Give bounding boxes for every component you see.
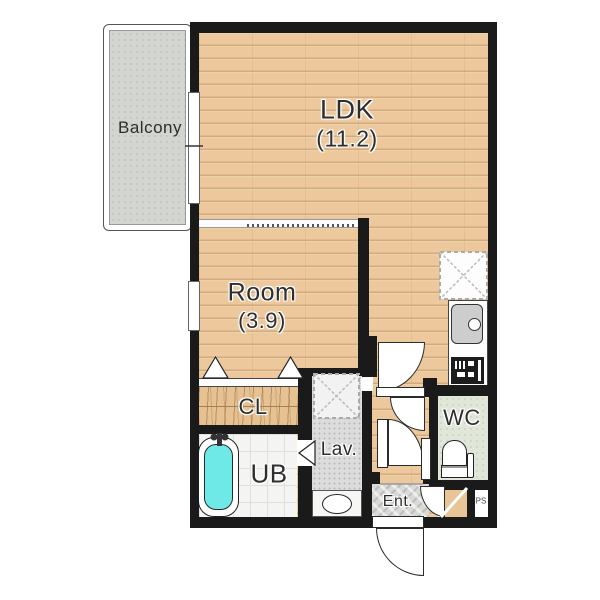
toilet-tank-icon	[441, 465, 468, 478]
ldk-door-leaf	[376, 387, 425, 397]
wall-kitchen-bottom	[429, 385, 497, 396]
balcony-window	[188, 92, 200, 204]
lavatory-label: Lav.	[321, 439, 358, 461]
floor-plan: LDK (11.2) Room (3.9) Balcony CL UB Lav.…	[0, 0, 600, 600]
front-door-arc	[376, 528, 424, 576]
wall-pipe-space-left	[467, 490, 475, 518]
wc-label: WC	[443, 405, 481, 431]
wall-right	[488, 22, 497, 528]
closet-label: CL	[238, 394, 267, 420]
pipe-space-label: PS	[476, 497, 487, 506]
room-label: Room	[228, 279, 297, 308]
lavatory-doorway-gap	[361, 377, 373, 391]
front-door-leaf	[372, 516, 424, 528]
washbasin-icon	[322, 494, 352, 514]
accordion-partition-dotted-line	[247, 224, 357, 227]
wall-top	[190, 22, 497, 33]
wall-closet-lavatory	[298, 368, 312, 517]
room-window	[188, 281, 200, 331]
entrance-label: Ent.	[383, 493, 413, 511]
hall-door-leaf	[377, 419, 388, 468]
toilet-flush-icon	[467, 453, 474, 478]
bathtub-water	[204, 444, 233, 510]
closet-door-track	[199, 378, 298, 387]
gas-stove-icon	[451, 357, 484, 384]
wall-bath-top	[190, 425, 298, 434]
wall-bottom	[190, 517, 497, 528]
toilet-bowl-icon	[442, 440, 467, 468]
bath-label: UB	[250, 459, 287, 490]
wall-hall-entrance-west	[362, 472, 380, 484]
ldk-size-label: (11.2)	[316, 126, 377, 153]
room-size-label: (3.9)	[238, 308, 286, 334]
ldk-label: LDK	[320, 95, 374, 126]
wc-door-leaf	[421, 438, 431, 480]
balcony-label: Balcony	[118, 118, 182, 138]
faucet-knob-icon	[468, 318, 481, 331]
